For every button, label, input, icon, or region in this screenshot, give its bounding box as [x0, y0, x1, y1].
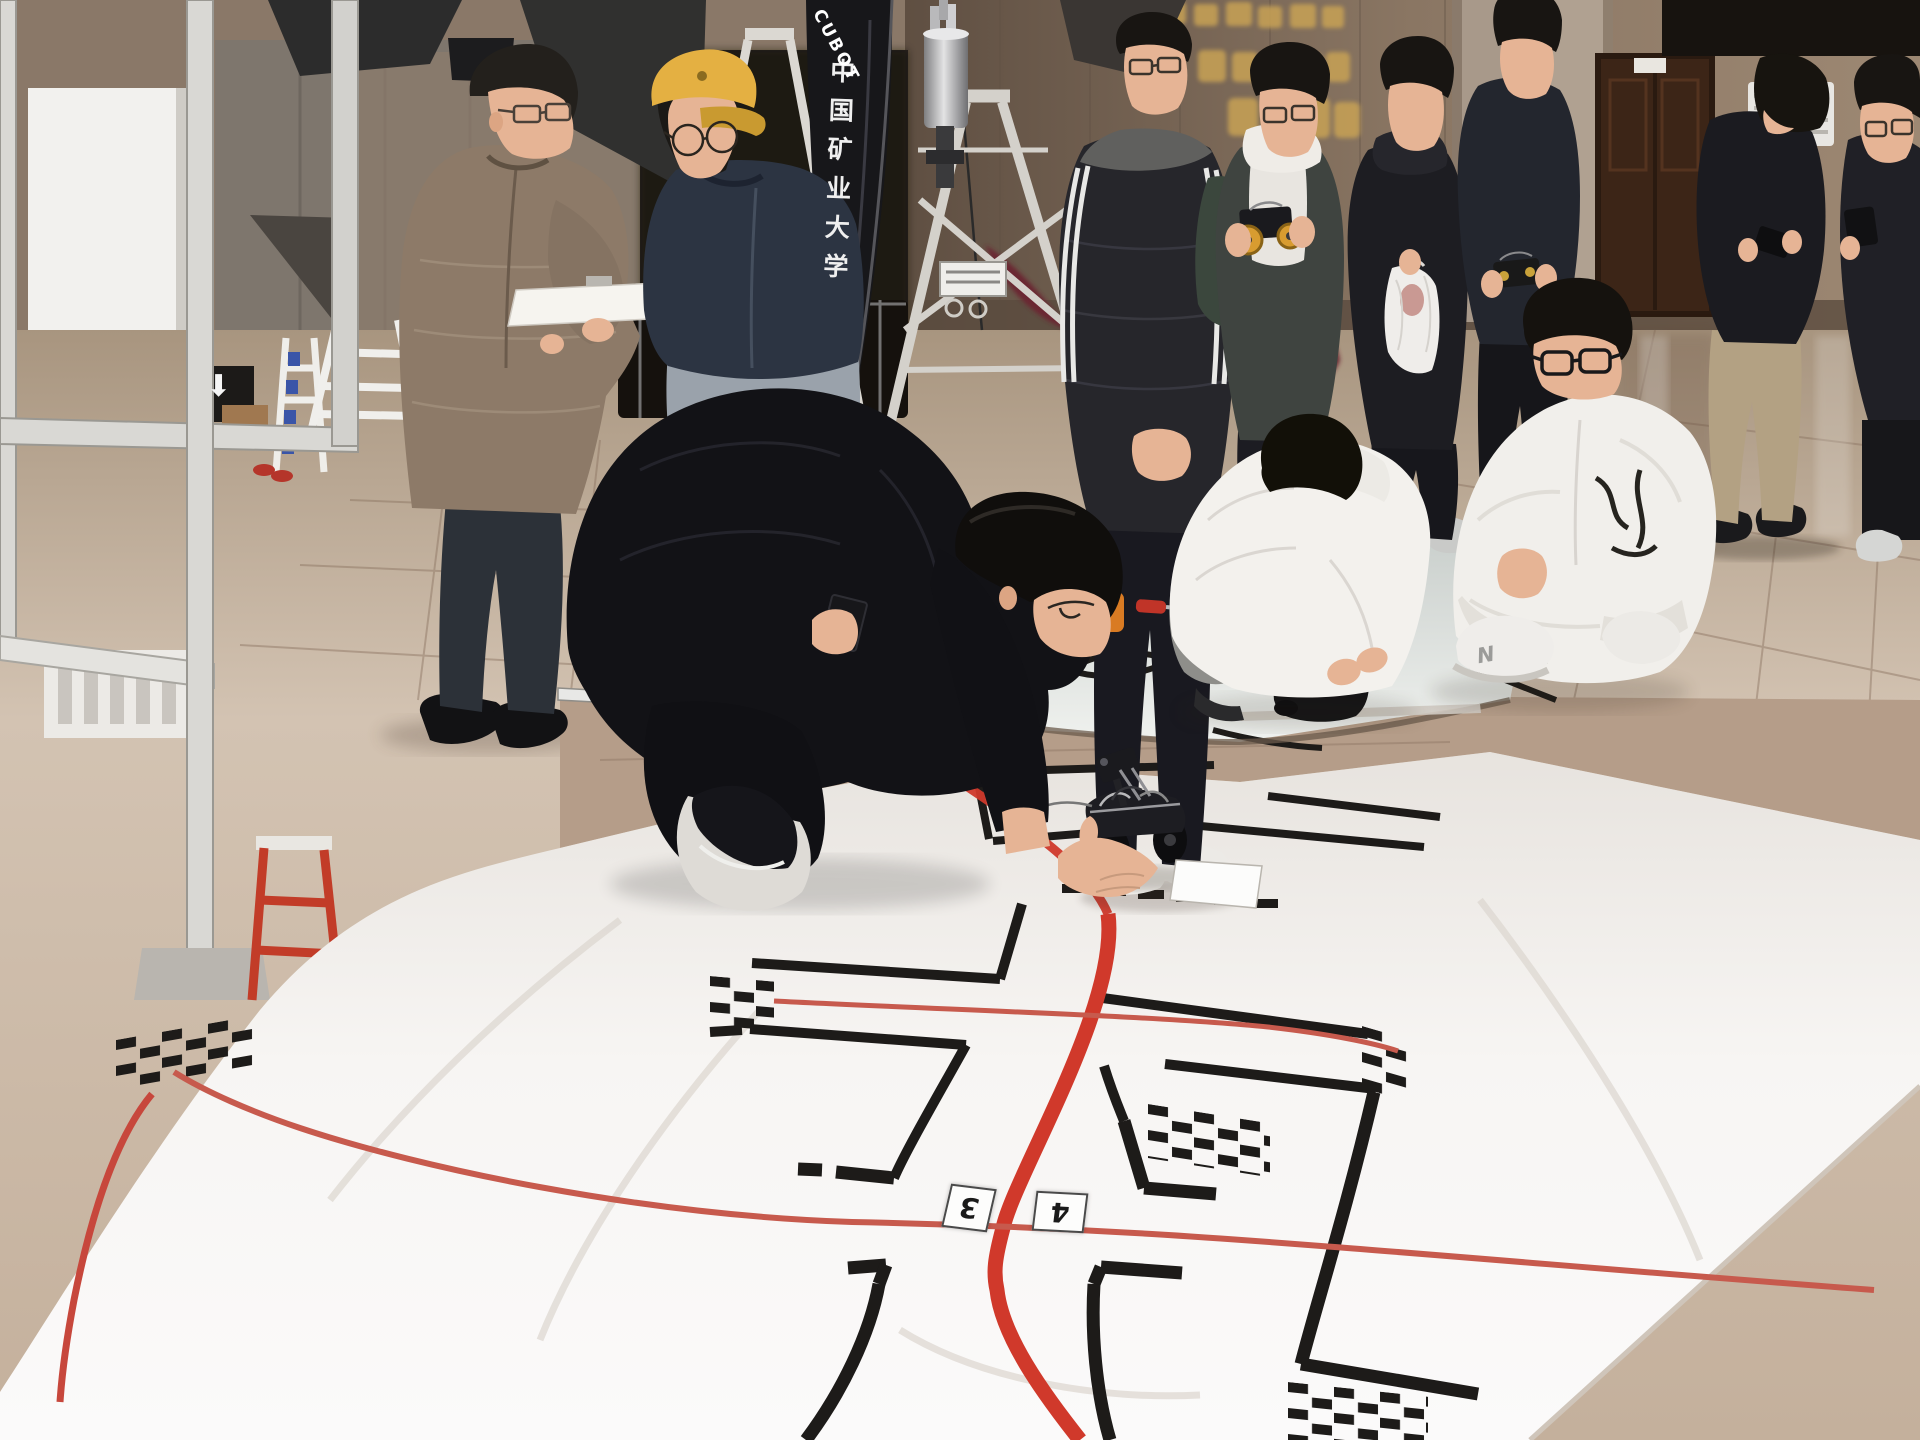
p6-face [1500, 39, 1554, 99]
k1-ear [999, 586, 1017, 610]
floor-glint-2 [1816, 336, 1850, 536]
k3-fist [1497, 549, 1547, 599]
door-sign [1634, 58, 1666, 73]
p5-face [1388, 83, 1444, 151]
red-slipper-2 [271, 470, 293, 482]
white-card-held [1170, 860, 1262, 908]
p4-hand-left [1225, 223, 1251, 257]
robot-chassis [1086, 790, 1186, 838]
cap-logo [697, 71, 707, 81]
p7b-legs [1862, 420, 1920, 540]
door [1598, 56, 1712, 314]
k3-shoe-left [1456, 616, 1554, 677]
top-right-dark-band [1662, 0, 1920, 56]
teacher-hand [582, 318, 614, 342]
clipboard-clip [586, 276, 612, 286]
p5-hand [1399, 249, 1421, 275]
puffer-face [1124, 45, 1187, 115]
p4-hand-right [1289, 216, 1315, 248]
photo-robot-competition-hall: 中国矿业大学 CUBOT 3 4 N ⬇ [0, 0, 1920, 1440]
shoe-brand-letter: N [1475, 642, 1496, 669]
track-card-3: 3 [941, 1184, 997, 1233]
p6-hand-left [1481, 270, 1503, 298]
k1-left-hand [812, 609, 858, 654]
puffer-hands-clasped [1132, 429, 1191, 481]
down-arrow-sign-icon: ⬇ [206, 372, 231, 402]
track-card-4: 4 [1032, 1191, 1089, 1234]
k1-wrist [1002, 808, 1050, 855]
